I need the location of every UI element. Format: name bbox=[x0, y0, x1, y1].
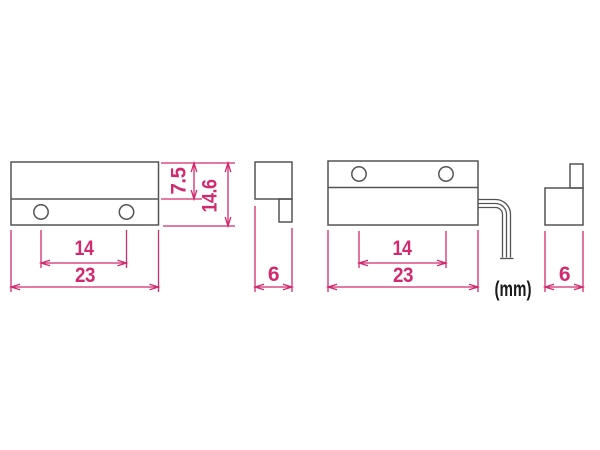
switch-lead-wires bbox=[478, 200, 514, 259]
magnet-front-dimensions: 14 23 7.5 14.6 bbox=[11, 163, 235, 292]
switch-front-dimensions: 14 23 bbox=[328, 230, 478, 292]
magnet-front-view bbox=[11, 162, 159, 225]
switch-mounting-hole-left bbox=[352, 167, 366, 181]
magnet-side-view bbox=[255, 162, 292, 222]
switch-front-outline bbox=[328, 161, 478, 225]
dimension-drawing-svg: 14 23 7.5 14.6 bbox=[0, 0, 600, 450]
magnet-side-dimensions: 6 bbox=[255, 206, 292, 292]
magnet-depth-label: 6 bbox=[268, 263, 279, 286]
switch-front-view bbox=[328, 161, 514, 259]
magnet-mounting-hole-left bbox=[34, 205, 48, 219]
magnet-total-height-label: 14.6 bbox=[199, 180, 222, 213]
magnet-width-label: 23 bbox=[75, 264, 95, 287]
switch-width-label: 23 bbox=[393, 264, 413, 287]
magnet-mounting-hole-right bbox=[119, 205, 133, 219]
magnet-side-body-outline bbox=[255, 162, 292, 199]
switch-side-flange-outline bbox=[570, 164, 583, 188]
switch-side-dimensions: 6 bbox=[545, 231, 583, 292]
magnet-body-height-label: 7.5 bbox=[168, 167, 191, 195]
magnet-front-outline bbox=[11, 162, 159, 225]
switch-hole-spacing-label: 14 bbox=[393, 237, 413, 260]
switch-mounting-hole-right bbox=[439, 167, 453, 181]
magnet-side-flange-outline bbox=[279, 199, 292, 222]
diagram-canvas: 14 23 7.5 14.6 bbox=[0, 0, 600, 450]
switch-side-view bbox=[545, 164, 583, 225]
switch-depth-label: 6 bbox=[559, 263, 570, 286]
magnet-hole-spacing-label: 14 bbox=[75, 237, 95, 260]
units-label: (mm) bbox=[495, 278, 532, 301]
switch-side-body-outline bbox=[545, 188, 583, 225]
